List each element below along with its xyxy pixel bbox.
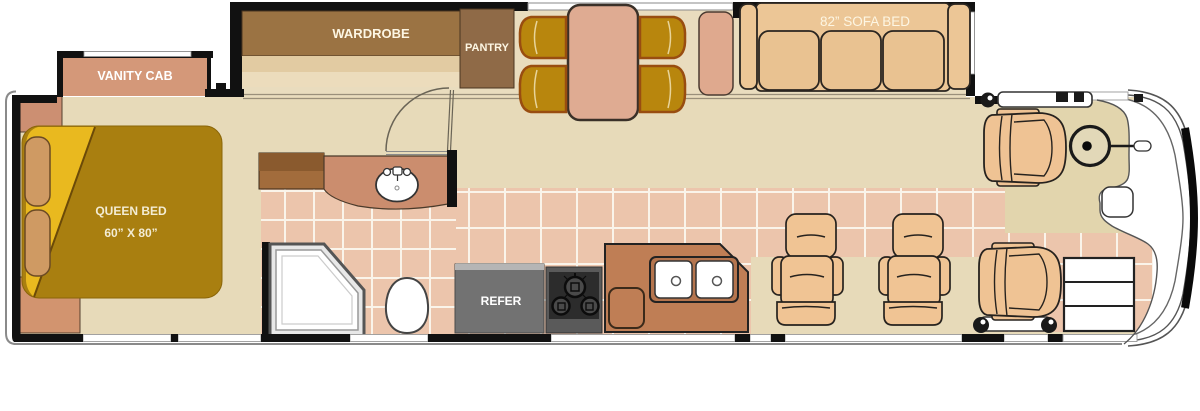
svg-text:82” SOFA BED: 82” SOFA BED xyxy=(820,14,910,29)
svg-text:VANITY CAB: VANITY CAB xyxy=(97,69,172,83)
svg-text:REFER: REFER xyxy=(481,294,522,308)
svg-text:QUEEN BED: QUEEN BED xyxy=(95,204,167,218)
svg-text:WARDROBE: WARDROBE xyxy=(332,26,410,41)
svg-text:PANTRY: PANTRY xyxy=(465,42,510,54)
svg-text:60” X 80”: 60” X 80” xyxy=(104,226,157,240)
